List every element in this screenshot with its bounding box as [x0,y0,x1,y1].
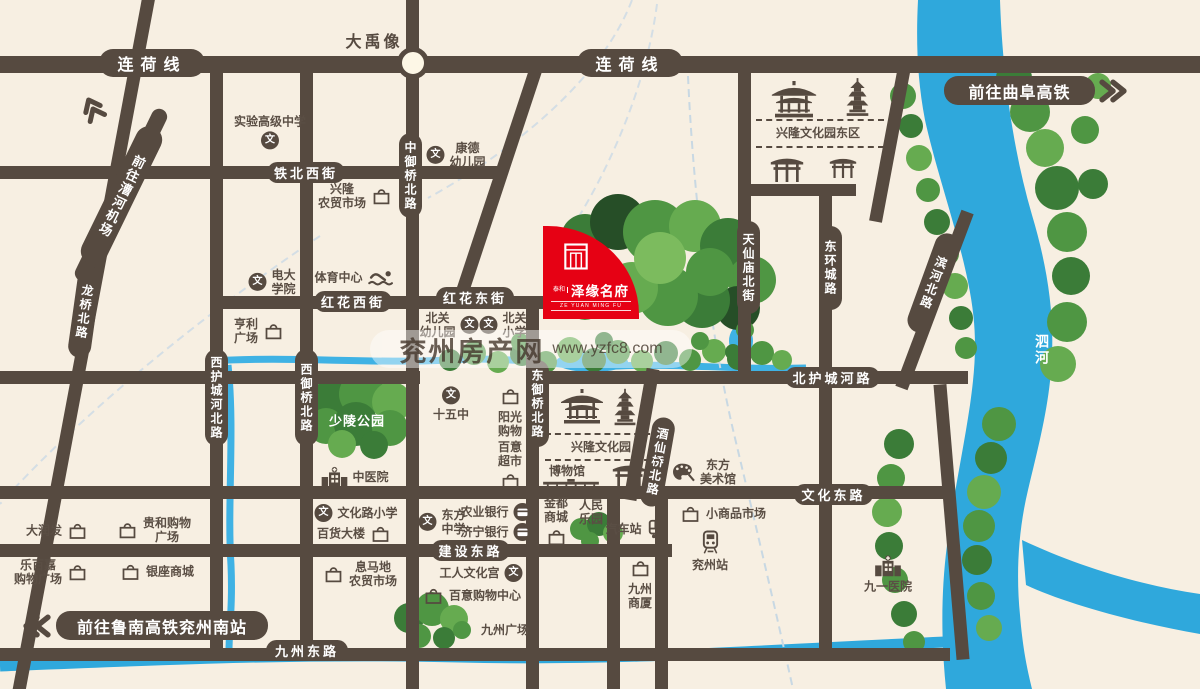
road-label-jianshe: 建设东路 [431,540,510,561]
sign-to-lunan-hsr: 前往鲁南高铁兖州南站 [56,611,268,640]
landmark-kangde-kindergarten: 文康德 幼儿园 [426,141,485,169]
pavilion-icon [558,389,606,425]
landmark-xinglong-market: 兴隆 农贸市场 [318,182,392,210]
landmark-yangguang-shopping: 阳光 购物 [498,386,522,438]
landmark-abc-bank: 农业银行 [460,503,531,521]
shop-bag-icon [117,520,138,541]
landmark-bus-station: 汽车站 [605,518,668,540]
pagoda-icon [612,387,638,427]
watermark-url: www.yzfc8.com [552,340,662,358]
xl-park-dash-top [545,433,660,435]
landmark-sports-center: 体育中心 [314,270,397,287]
road-tianxianmiao [738,61,751,377]
road-label-honghua-e: 红花东街 [436,287,514,308]
hospital-icon [875,554,901,576]
landmark-dianda-college: 文电大 学院 [248,268,295,296]
shop-bag-icon [370,524,391,545]
road-label-zhongyuqiao: 中御桥北路 [399,133,422,218]
chevron-right-icon [1098,79,1128,103]
road-east-district-st [744,184,856,196]
pagoda-icon [844,76,871,118]
shop-bag-icon [680,504,701,525]
shop-bag-icon [371,186,392,207]
road-label-lianhe-1: 连荷线 [99,49,205,77]
gate-icon [608,462,650,489]
xl-east-label: 兴隆文化园东区 [776,126,860,140]
road-jianshe-east-rd [0,544,672,557]
landmark-no15-middle: 文十五中 [433,386,469,421]
landmark-baihuo-building: 百货大楼 [317,524,391,545]
shop-bag-icon [67,521,88,542]
landmark-guihe-plaza: 贵和购物 广场 [117,516,191,544]
landmark-jining-bank: 济宁银行 [460,523,531,541]
xl-east-dash-bottom [756,146,884,148]
shop-bag-icon [67,562,88,583]
landmark-baiyi-mall: 百意购物中心 [423,586,521,607]
landmark-renmin-park: 人民 乐园 [579,498,603,526]
shaoling-park-label: 少陵公园 [329,411,385,430]
palette-icon [672,462,695,483]
landmark-wenhualu-primary: 文文化路小学 [314,504,397,522]
landmark-small-commodity-market: 小商品市场 [680,504,766,525]
landmark-darunfa: 大润发 [26,521,88,542]
school-icon: 文 [261,132,279,150]
school-icon: 文 [314,504,332,522]
road-label-donghuancheng: 东环城路 [819,226,842,310]
road-label-tiebei: 铁北西街 [267,162,345,183]
bank-card-icon [514,523,532,541]
xl-east-dash-top [756,119,884,121]
hospital-icon [321,466,347,488]
landmark-jiuzhou-building: 九州 商厦 [628,558,652,610]
road-label-beihucheng: 北护城河路 [785,367,880,388]
landmark-dongfang-art-museum: 东方 美术馆 [672,458,736,486]
school-icon: 文 [418,513,436,531]
shop-bag-icon [423,586,444,607]
watermark-site-name: 兖州房产网 [399,330,544,369]
school-icon: 文 [442,386,460,404]
landmark-yanzhou-station: 兖州站 [692,530,728,572]
landmark-workers-palace: 工人文化宫文 [439,564,522,582]
xl-park-dash-bottom [545,459,660,461]
train-icon [700,530,719,555]
landmark-tcm-hospital: 中医院 [321,466,388,488]
school-icon: 文 [505,564,523,582]
gate-icon [766,155,808,182]
museum-label: 博物馆 [549,464,585,478]
landmark-dongfang-middle: 文东方 中学 [418,508,465,536]
corridor-icon [542,479,600,492]
bus-icon [647,518,669,540]
project-english-name: ZE YUAN MING FU [551,301,631,311]
shop-bag-icon [323,564,344,585]
shop-bag-icon [499,471,520,492]
chevron-left-icon [22,614,52,638]
landmark-jiuyi-hospital: 九一医院 [864,554,912,593]
road-label-xiyuqiao: 西御桥北路 [295,349,318,446]
road-label-lianhe-2: 连荷线 [577,49,683,77]
road-label-jiuzhou-e: 九州东路 [266,640,348,661]
watermark: 兖州房产网 www.yzfc8.com [370,330,692,368]
sihe-branch [1022,540,1200,634]
school-icon: 文 [248,273,266,291]
landmark-jindu-mall: 金都 商城 [544,496,568,548]
road-label-honghua-w: 红花西街 [314,291,392,312]
landmark-yinzuo-mall: 银座商城 [120,562,194,583]
road-jiuzhou-east-rd [0,648,950,661]
road-label-tianxianmiao: 天仙庙北街 [737,221,760,314]
dayu-statue-label: 大禹像 [345,28,402,52]
shop-bag-icon [545,527,566,548]
sihe-river-label: 泗河 [1032,334,1052,366]
landmark-lebaijia-plaza: 乐百嘉 购物广场 [14,558,88,586]
road-middle-south [607,486,620,689]
swimmer-icon [368,270,398,287]
landmark-shiyan-school: 实验高级中学文 [234,114,306,149]
bank-card-icon [514,503,532,521]
road-label-xihucheng: 西护城河北路 [205,349,228,446]
shop-bag-icon [263,321,284,342]
project-name: 泽缘名府 [571,280,629,300]
shop-bag-icon [499,386,520,407]
project-gate-logo-icon [564,243,588,270]
landmark-hengli-plaza: 亨利 广场 [234,317,284,345]
pavilion-icon [768,81,820,119]
shop-bag-icon [629,558,650,579]
sign-to-qufu-hsr: 前往曲阜高铁 [944,76,1095,105]
gate-icon [828,156,858,178]
landmark-baiyi-super: 百意 超市 [498,440,522,492]
landmark-jiuzhou-plaza-label: 九州广场 [481,623,529,637]
map-canvas: 大禹像 连荷线 连荷线 铁北西街 红花西街 红花东街 北护城河路 建设东路 文化… [0,0,1200,689]
road-label-wenhua-e: 文化东路 [794,484,873,505]
xl-park-label: 兴隆文化园 [571,440,631,454]
landmark-ximadi-market: 息马地 农贸市场 [323,560,397,588]
project-prefix: 泰和 [553,287,568,294]
shop-bag-icon [120,562,141,583]
school-icon: 文 [426,146,444,164]
